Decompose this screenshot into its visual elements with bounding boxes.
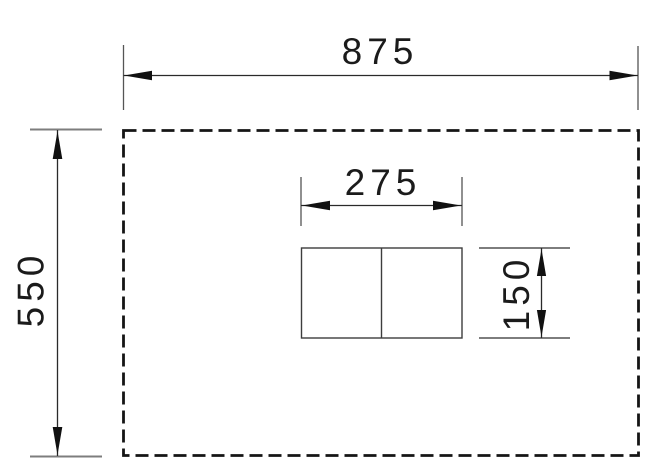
arrow-left-icon: [302, 201, 330, 211]
arrow-left-icon: [124, 71, 152, 81]
dimension-label-cutout-height: 150: [496, 255, 537, 332]
drawing-canvas: 875 550 275 150: [0, 0, 666, 461]
technical-drawing: 875 550 275 150: [0, 0, 666, 461]
arrow-right-icon: [610, 71, 638, 81]
dimension-label-panel-height: 550: [11, 251, 52, 328]
arrow-right-icon: [433, 201, 461, 211]
arrow-up-icon: [537, 249, 546, 276]
dimension-label-panel-width: 875: [342, 31, 419, 72]
arrow-up-icon: [53, 131, 63, 159]
dimension-panel-height: 550: [11, 130, 103, 457]
dimension-cutout-height: 150: [479, 248, 570, 338]
dimension-label-cutout-width: 275: [345, 162, 422, 203]
cutout-group: [302, 248, 463, 338]
dimension-cutout-width: 275: [301, 162, 462, 226]
dimension-panel-width: 875: [124, 31, 639, 110]
arrow-down-icon: [53, 427, 63, 455]
arrow-down-icon: [537, 310, 546, 337]
